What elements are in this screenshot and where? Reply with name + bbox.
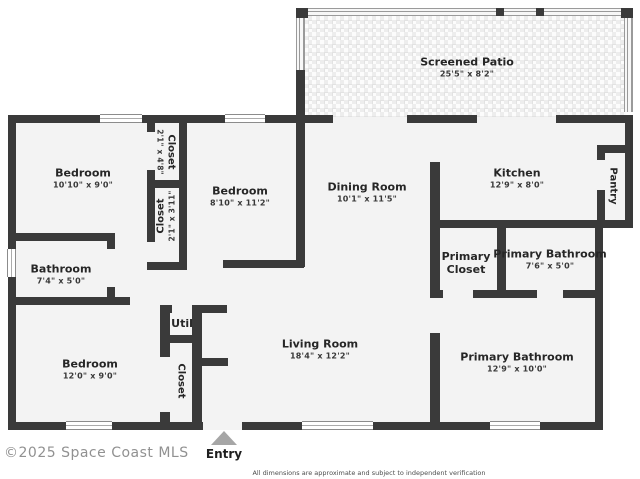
- room-name: Bedroom: [210, 185, 270, 199]
- room-name: Bedroom: [53, 167, 113, 181]
- room-label-screened-patio: Screened Patio 25'5" x 8'2": [420, 56, 514, 81]
- room-label-primary-bathroom-large: Primary Bathroom 12'9" x 10'0": [460, 351, 573, 376]
- wall-segment: [160, 412, 170, 422]
- wall-segment: [621, 8, 633, 18]
- room-label-primary-bathroom-small: Primary Bathroom 7'6" x 5'0": [493, 248, 606, 273]
- floor-plan: Screened Patio 25'5" x 8'2" Bedroom 10'1…: [0, 0, 640, 479]
- room-label-bedroom-bottom: Bedroom 12'0" x 9'0": [62, 358, 118, 383]
- room-dims: 10'1" x 11'5": [327, 195, 406, 205]
- entry-arrow-icon: [211, 431, 237, 445]
- wall-segment: [597, 145, 633, 153]
- room-name: Util: [171, 317, 193, 331]
- wall-segment: [540, 422, 603, 430]
- wall-segment: [112, 422, 203, 430]
- wall-segment: [8, 233, 115, 241]
- room-dims: 7'4" x 5'0": [31, 277, 92, 287]
- screen-window: [624, 18, 633, 112]
- room-name: Dining Room: [327, 181, 406, 195]
- wall-segment: [223, 260, 304, 268]
- room-label-bedroom-mid: Bedroom 8'10" x 11'2": [210, 185, 270, 210]
- room-dims: 18'4" x 12'2": [282, 352, 358, 362]
- screen-window: [308, 8, 496, 16]
- disclaimer-text: All dimensions are approximate and subje…: [252, 469, 485, 477]
- window: [490, 421, 540, 430]
- wall-segment: [265, 115, 333, 123]
- wall-segment: [202, 358, 228, 366]
- wall-segment: [8, 115, 100, 123]
- wall-segment: [8, 297, 130, 305]
- room-label-closet-mid: Closet 2'1" x 3'11": [155, 191, 178, 242]
- room-label-dining-room: Dining Room 10'1" x 11'5": [327, 181, 406, 206]
- wall-segment: [192, 305, 202, 422]
- wall-segment: [430, 333, 440, 422]
- wall-segment: [296, 123, 305, 267]
- room-label-bathroom: Bathroom 7'4" x 5'0": [31, 263, 92, 288]
- window: [225, 114, 265, 123]
- room-name: Primary Bathroom: [493, 248, 606, 262]
- screen-window: [296, 18, 305, 70]
- mls-watermark: ©2025 Space Coast MLS: [4, 445, 189, 461]
- room-name: Kitchen: [490, 167, 544, 181]
- wall-segment: [563, 290, 603, 298]
- room-dims: 12'9" x 10'0": [460, 365, 573, 375]
- window: [7, 249, 16, 277]
- room-name: Primary Closet: [436, 250, 496, 276]
- wall-segment: [496, 8, 504, 16]
- window: [302, 421, 373, 430]
- wall-segment: [296, 8, 308, 18]
- room-dims: 10'10" x 9'0": [53, 181, 113, 191]
- wall-segment: [473, 290, 537, 298]
- window: [100, 114, 142, 123]
- room-name: Pantry: [607, 167, 620, 204]
- wall-segment: [179, 115, 187, 268]
- room-dims: 2'1" x 4'8": [155, 129, 165, 175]
- room-dims: 8'10" x 11'2": [210, 199, 270, 209]
- room-dims: 12'9" x 8'0": [490, 181, 544, 191]
- wall-segment: [242, 422, 302, 430]
- room-dims: 7'6" x 5'0": [493, 262, 606, 272]
- window: [66, 421, 112, 430]
- room-name: Screened Patio: [420, 56, 514, 70]
- room-label-closet-bottom: Closet: [175, 363, 188, 398]
- screen-window: [544, 8, 621, 16]
- room-label-closet-top: Closet 2'1" x 4'8": [155, 129, 178, 175]
- room-name: Closet: [175, 363, 188, 398]
- wall-segment: [536, 8, 544, 16]
- room-name: Bathroom: [31, 263, 92, 277]
- room-dims: 12'0" x 9'0": [62, 372, 118, 382]
- room-label-pantry: Pantry: [607, 167, 620, 204]
- wall-segment: [407, 115, 477, 123]
- room-dims: 25'5" x 8'2": [420, 70, 514, 80]
- room-label-kitchen: Kitchen 12'9" x 8'0": [490, 167, 544, 192]
- room-label-util: Util: [171, 317, 193, 331]
- room-name: Closet: [155, 191, 168, 242]
- room-label-primary-closet: Primary Closet: [436, 250, 496, 276]
- room-name: Bedroom: [62, 358, 118, 372]
- room-name: Living Room: [282, 338, 358, 352]
- wall-segment: [597, 190, 605, 220]
- wall-segment: [160, 343, 170, 357]
- wall-segment: [8, 115, 16, 249]
- room-name: Closet: [164, 129, 177, 175]
- room-name: Primary Bathroom: [460, 351, 573, 365]
- wall-segment: [107, 233, 115, 249]
- room-label-bedroom-left: Bedroom 10'10" x 9'0": [53, 167, 113, 192]
- wall-segment: [373, 422, 490, 430]
- room-label-living-room: Living Room 18'4" x 12'2": [282, 338, 358, 363]
- wall-segment: [625, 115, 633, 228]
- wall-segment: [556, 115, 633, 123]
- entry-label: Entry: [206, 447, 242, 461]
- room-dims: 2'1" x 3'11": [168, 191, 178, 242]
- screen-window: [504, 8, 536, 16]
- wall-segment: [8, 422, 66, 430]
- wall-segment: [430, 290, 443, 298]
